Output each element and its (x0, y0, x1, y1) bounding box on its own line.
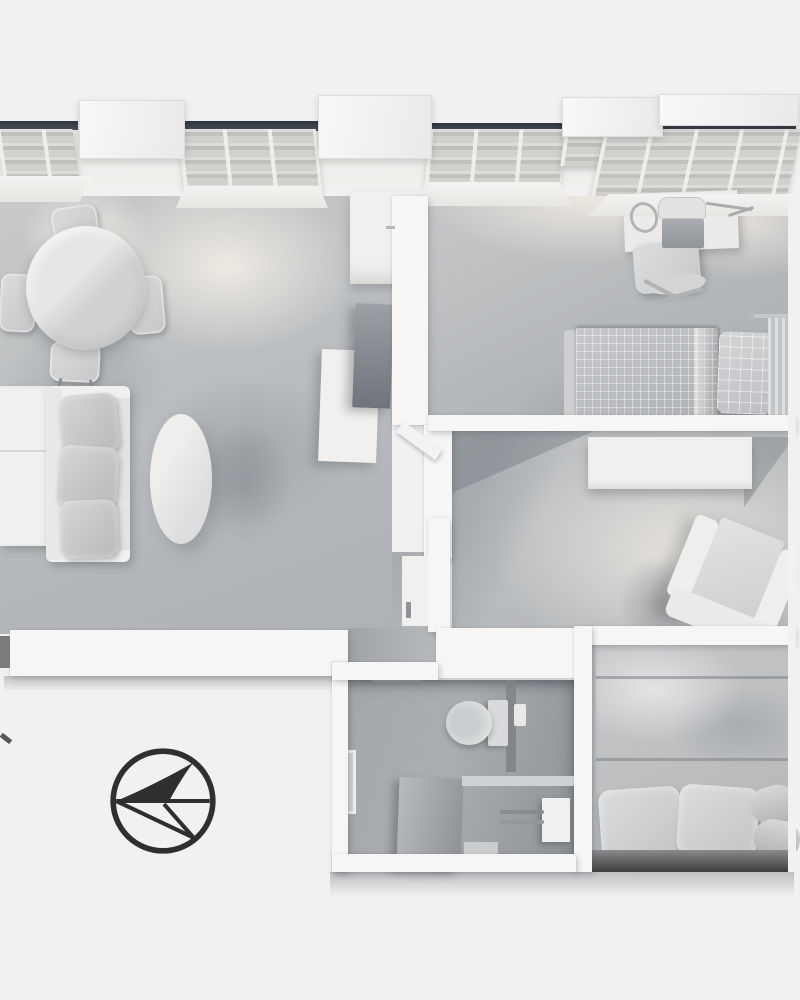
wall-bathroom-bottom (332, 854, 576, 872)
wall-right-exterior (788, 196, 796, 872)
wall-living-bottom (10, 630, 348, 676)
wall-bedroom3-left (574, 626, 592, 872)
window-sill (414, 182, 572, 206)
radiator-grille (178, 129, 323, 193)
window-bay-block (562, 97, 663, 137)
radiator-grille (424, 129, 565, 187)
wall-bedroom1-bedroom2 (428, 415, 794, 431)
bed3-duvet (596, 644, 788, 794)
laptop-lid (658, 197, 706, 219)
towel-rail-bracket (542, 798, 570, 842)
window-sill (0, 176, 92, 202)
tv-panel (352, 303, 394, 408)
bed1-side-rail (564, 330, 576, 416)
radiator-grille (591, 129, 800, 197)
sofa-cushion (59, 499, 119, 559)
door-handle (406, 602, 411, 618)
cabinet-handle (386, 226, 395, 229)
edge-artifact-line (0, 733, 12, 744)
window-bay-block (318, 95, 432, 159)
wall-central-upper (392, 196, 428, 425)
bed3-pillow (676, 783, 761, 858)
bed3-frame-edge (592, 850, 790, 872)
bathroom-door-plate (514, 704, 526, 726)
coffee-table (150, 414, 212, 544)
wall-central-lower (428, 518, 450, 632)
window-bay-block (659, 94, 799, 126)
window-sill (176, 186, 328, 208)
bed3-fold-line (596, 758, 788, 761)
dining-table (26, 226, 146, 350)
bed3-fold-line (596, 676, 788, 679)
window-bay-block (79, 100, 185, 159)
towel-rail (500, 810, 544, 814)
wall-bathroom-left (332, 662, 348, 872)
curtain (768, 316, 790, 416)
bed1-pillow (717, 331, 774, 415)
north-arrow-icon (104, 742, 222, 860)
curtain-rod-finial (748, 312, 755, 319)
wall-bathroom-top (332, 662, 438, 680)
wall-bedroom3-top (588, 626, 794, 645)
vanity-shelf (462, 776, 574, 786)
towel-rail (500, 820, 544, 824)
wall-stub-dark (0, 636, 10, 668)
compass-bottom-fin (116, 801, 193, 838)
model-drop-shadow (4, 676, 352, 692)
toilet-bowl (446, 701, 492, 745)
radiator-grille (0, 129, 80, 181)
floorplan-render (0, 0, 800, 1000)
wardrobe (588, 437, 752, 489)
wall-bathroom-north-L (436, 628, 588, 678)
laptop-keyboard (662, 219, 704, 248)
door-threshold (372, 680, 422, 685)
model-drop-shadow (330, 872, 794, 896)
